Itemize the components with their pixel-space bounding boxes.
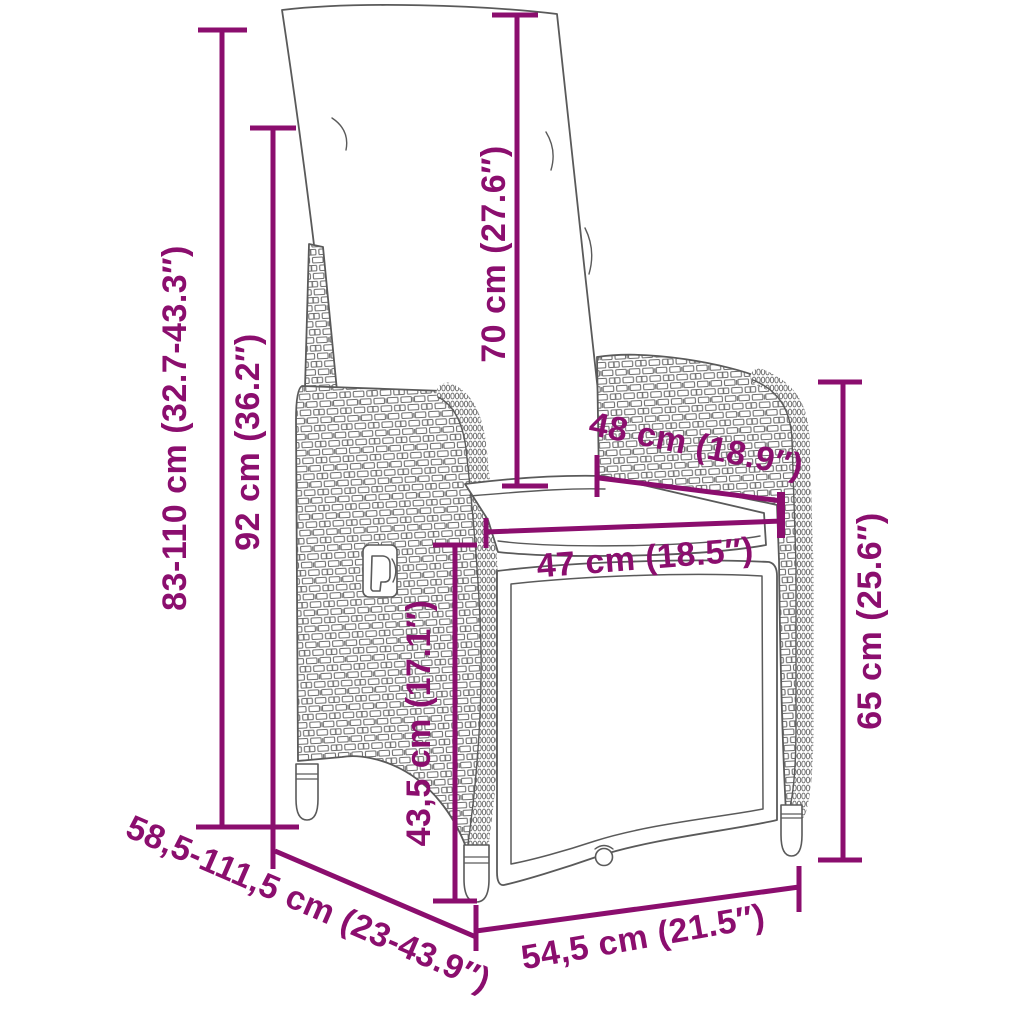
label-total-height: 83-110 cm (32.7-43.3″) xyxy=(156,245,194,611)
product-dimension-diagram: 83-110 cm (32.7-43.3″) 92 cm (36.2″) 70 … xyxy=(0,0,1024,1024)
caster-wheel xyxy=(596,849,613,866)
footrest-panel xyxy=(497,560,777,885)
side-panel xyxy=(296,386,490,847)
label-backrest-height: 92 cm (36.2″) xyxy=(229,333,267,550)
dimension-diagram-canvas: 83-110 cm (32.7-43.3″) 92 cm (36.2″) 70 … xyxy=(0,0,1024,1024)
recline-lever xyxy=(363,545,397,597)
rear-left-leg xyxy=(296,764,318,820)
label-armrest-height: 65 cm (25.6″) xyxy=(851,512,889,729)
label-back-cushion: 70 cm (27.6″) xyxy=(475,145,513,362)
front-right-leg xyxy=(781,805,802,856)
front-left-leg xyxy=(464,845,489,902)
label-seat-height: 43,5 cm (17.1″) xyxy=(400,600,438,847)
label-depth-range: 58,5-111,5 cm (23-43.9″) xyxy=(121,808,497,1000)
